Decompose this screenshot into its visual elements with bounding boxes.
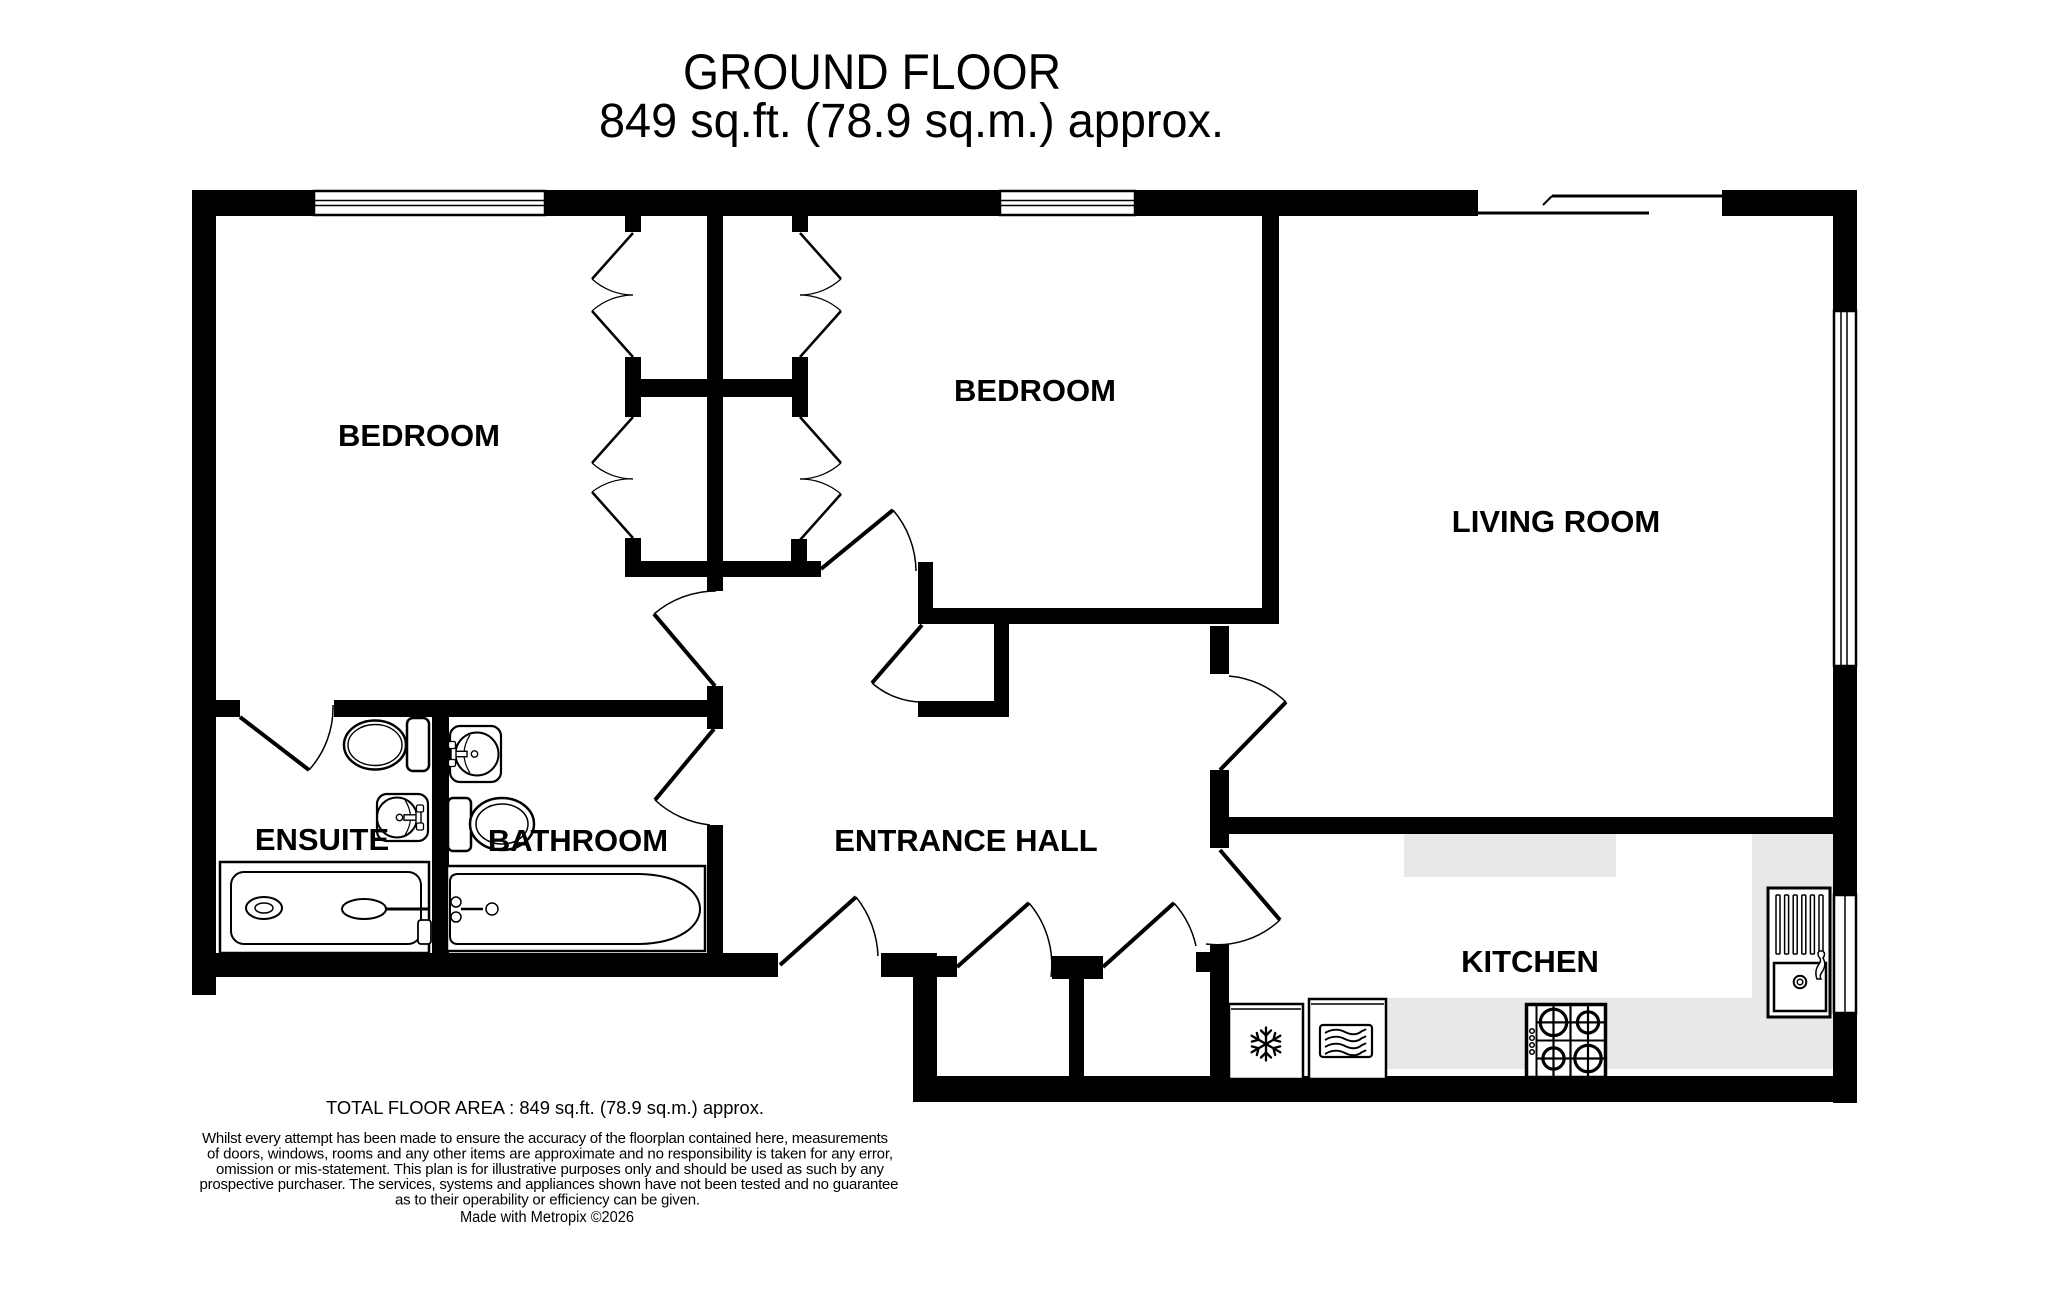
svg-text:TOTAL FLOOR AREA : 849 sq.ft.: TOTAL FLOOR AREA : 849 sq.ft. (78.9 sq.m… (326, 1097, 764, 1118)
svg-text:GROUND FLOOR: GROUND FLOOR (683, 44, 1061, 100)
svg-text:KITCHEN: KITCHEN (1461, 944, 1599, 979)
svg-text:ENTRANCE HALL: ENTRANCE HALL (834, 823, 1098, 858)
svg-text:LIVING ROOM: LIVING ROOM (1452, 504, 1660, 539)
svg-text:BEDROOM: BEDROOM (338, 418, 500, 453)
svg-text:as to their operability or eff: as to their operability or efficiency ca… (395, 1192, 700, 1209)
svg-text:BEDROOM: BEDROOM (954, 373, 1116, 408)
svg-text:849 sq.ft. (78.9 sq.m.) approx: 849 sq.ft. (78.9 sq.m.) approx. (599, 95, 1224, 148)
svg-text:Made with Metropix ©2026: Made with Metropix ©2026 (460, 1209, 634, 1226)
svg-text:ENSUITE: ENSUITE (255, 822, 389, 857)
svg-text:BATHROOM: BATHROOM (488, 823, 668, 858)
